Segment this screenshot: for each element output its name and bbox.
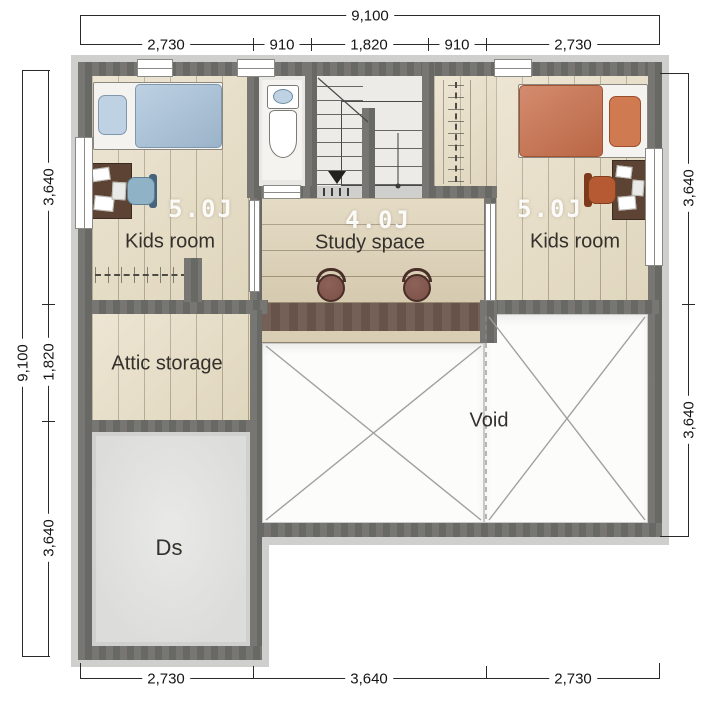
wall-void-bottom [250,523,662,537]
dim-top-total: 9,100 [346,8,394,25]
window-left-wall [75,137,93,229]
dim-tick [22,70,50,71]
sliding-door-study-right [485,203,496,301]
desk-right-paper-3 [631,180,644,197]
dim-tick [660,536,688,537]
dim-right-seg-1: 3,640 [681,396,698,444]
dim-top-seg-2: 1,820 [345,37,393,54]
floor-void-right [484,314,648,523]
closet-shelf-line-right-b [470,80,471,184]
bed-left-pillow [98,95,127,135]
chair-right-seat [588,176,616,204]
dim-tick [486,666,487,679]
dim-tick [486,38,487,51]
toilet-door [263,185,301,199]
bed-right-pillow [609,96,641,147]
kids-right-size-label: 5.0J [517,195,583,223]
dim-tick [253,38,254,51]
closet-shelf-line-right-a [443,80,444,184]
chair-left-seat [127,177,155,205]
wall-toilet-left [247,62,259,198]
stair-divider-wall [362,108,375,198]
dim-left-seg-2: 3,640 [41,514,58,562]
kids-right-name-label: Kids room [530,231,620,254]
wall-closet-bottom [422,186,497,198]
dim-tick [42,304,55,305]
wall-kids-right-bottom [484,300,662,314]
window-top-right [494,59,532,77]
wall-closet-left-stub [184,258,202,302]
kids-left-size-label: 5.0J [168,195,234,223]
bed-right-duvet [519,85,603,157]
dim-tick [22,656,50,657]
window-top-toilet [237,59,275,77]
dim-tick [80,663,81,679]
dim-tick [428,38,429,51]
stool-1 [317,274,345,302]
ds-name-label: Ds [156,535,183,561]
wall-ds-bottom [78,646,262,660]
dim-tick [659,15,660,45]
dim-top-seg-3: 910 [439,37,474,54]
window-right-wall [645,148,663,266]
desk-left-paper-3 [112,182,127,201]
dim-tick [660,73,688,74]
study-name-label: Study space [315,232,425,255]
dim-tick [80,15,81,45]
dim-bottom-seg-0: 2,730 [142,671,190,688]
wall-stairs-right [422,62,434,198]
wall-mid-left-column [78,300,268,314]
study-counter-desk [262,303,484,331]
toilet-bowl [269,110,297,158]
floor-plan: 5.0J Kids room 4.0J Study space 5.0J Kid… [0,0,710,705]
closet-hanger-ticks-left [95,267,187,283]
wall-attic-ds [78,420,262,432]
wall-left-column-east [250,310,262,646]
dim-right-line [688,73,689,537]
dim-tick [659,663,660,679]
stair-down-arrow-icon [328,171,346,184]
attic-name-label: Attic storage [111,353,222,376]
bed-left-duvet [135,84,222,148]
stair-treads-lower [375,130,422,186]
desk-right-paper-1 [615,165,632,179]
study-counter-edge [262,331,484,343]
dim-tick [311,38,312,51]
window-top-left [137,59,173,77]
desk-left-paper-1 [91,167,111,182]
void-name-label: Void [470,410,509,433]
dim-left-seg-1: 1,820 [41,338,58,386]
closet-hanger-ticks-right [448,82,464,182]
dim-tick [42,421,55,422]
dim-top-seg-1: 910 [264,37,299,54]
dim-tick [253,666,254,679]
dim-left-seg-0: 3,640 [41,163,58,211]
dim-bottom-seg-2: 2,730 [549,671,597,688]
sliding-door-study-left [249,200,260,292]
dim-left-total: 9,100 [15,339,32,387]
study-size-label: 4.0J [345,206,411,234]
wall-toilet-right [305,62,317,198]
kids-left-name-label: Kids room [125,231,215,254]
dim-top-seg-0: 2,730 [142,37,190,54]
stool-2 [403,274,431,302]
dim-bottom-seg-1: 3,640 [345,671,393,688]
dim-tick [682,304,695,305]
dim-top-seg-4: 2,730 [549,37,597,54]
toilet-lid [273,89,293,104]
desk-right-paper-2 [617,195,636,211]
wall-void-corner-stub [480,300,497,343]
floor-void-left [262,343,484,523]
dim-right-seg-0: 3,640 [681,164,698,212]
